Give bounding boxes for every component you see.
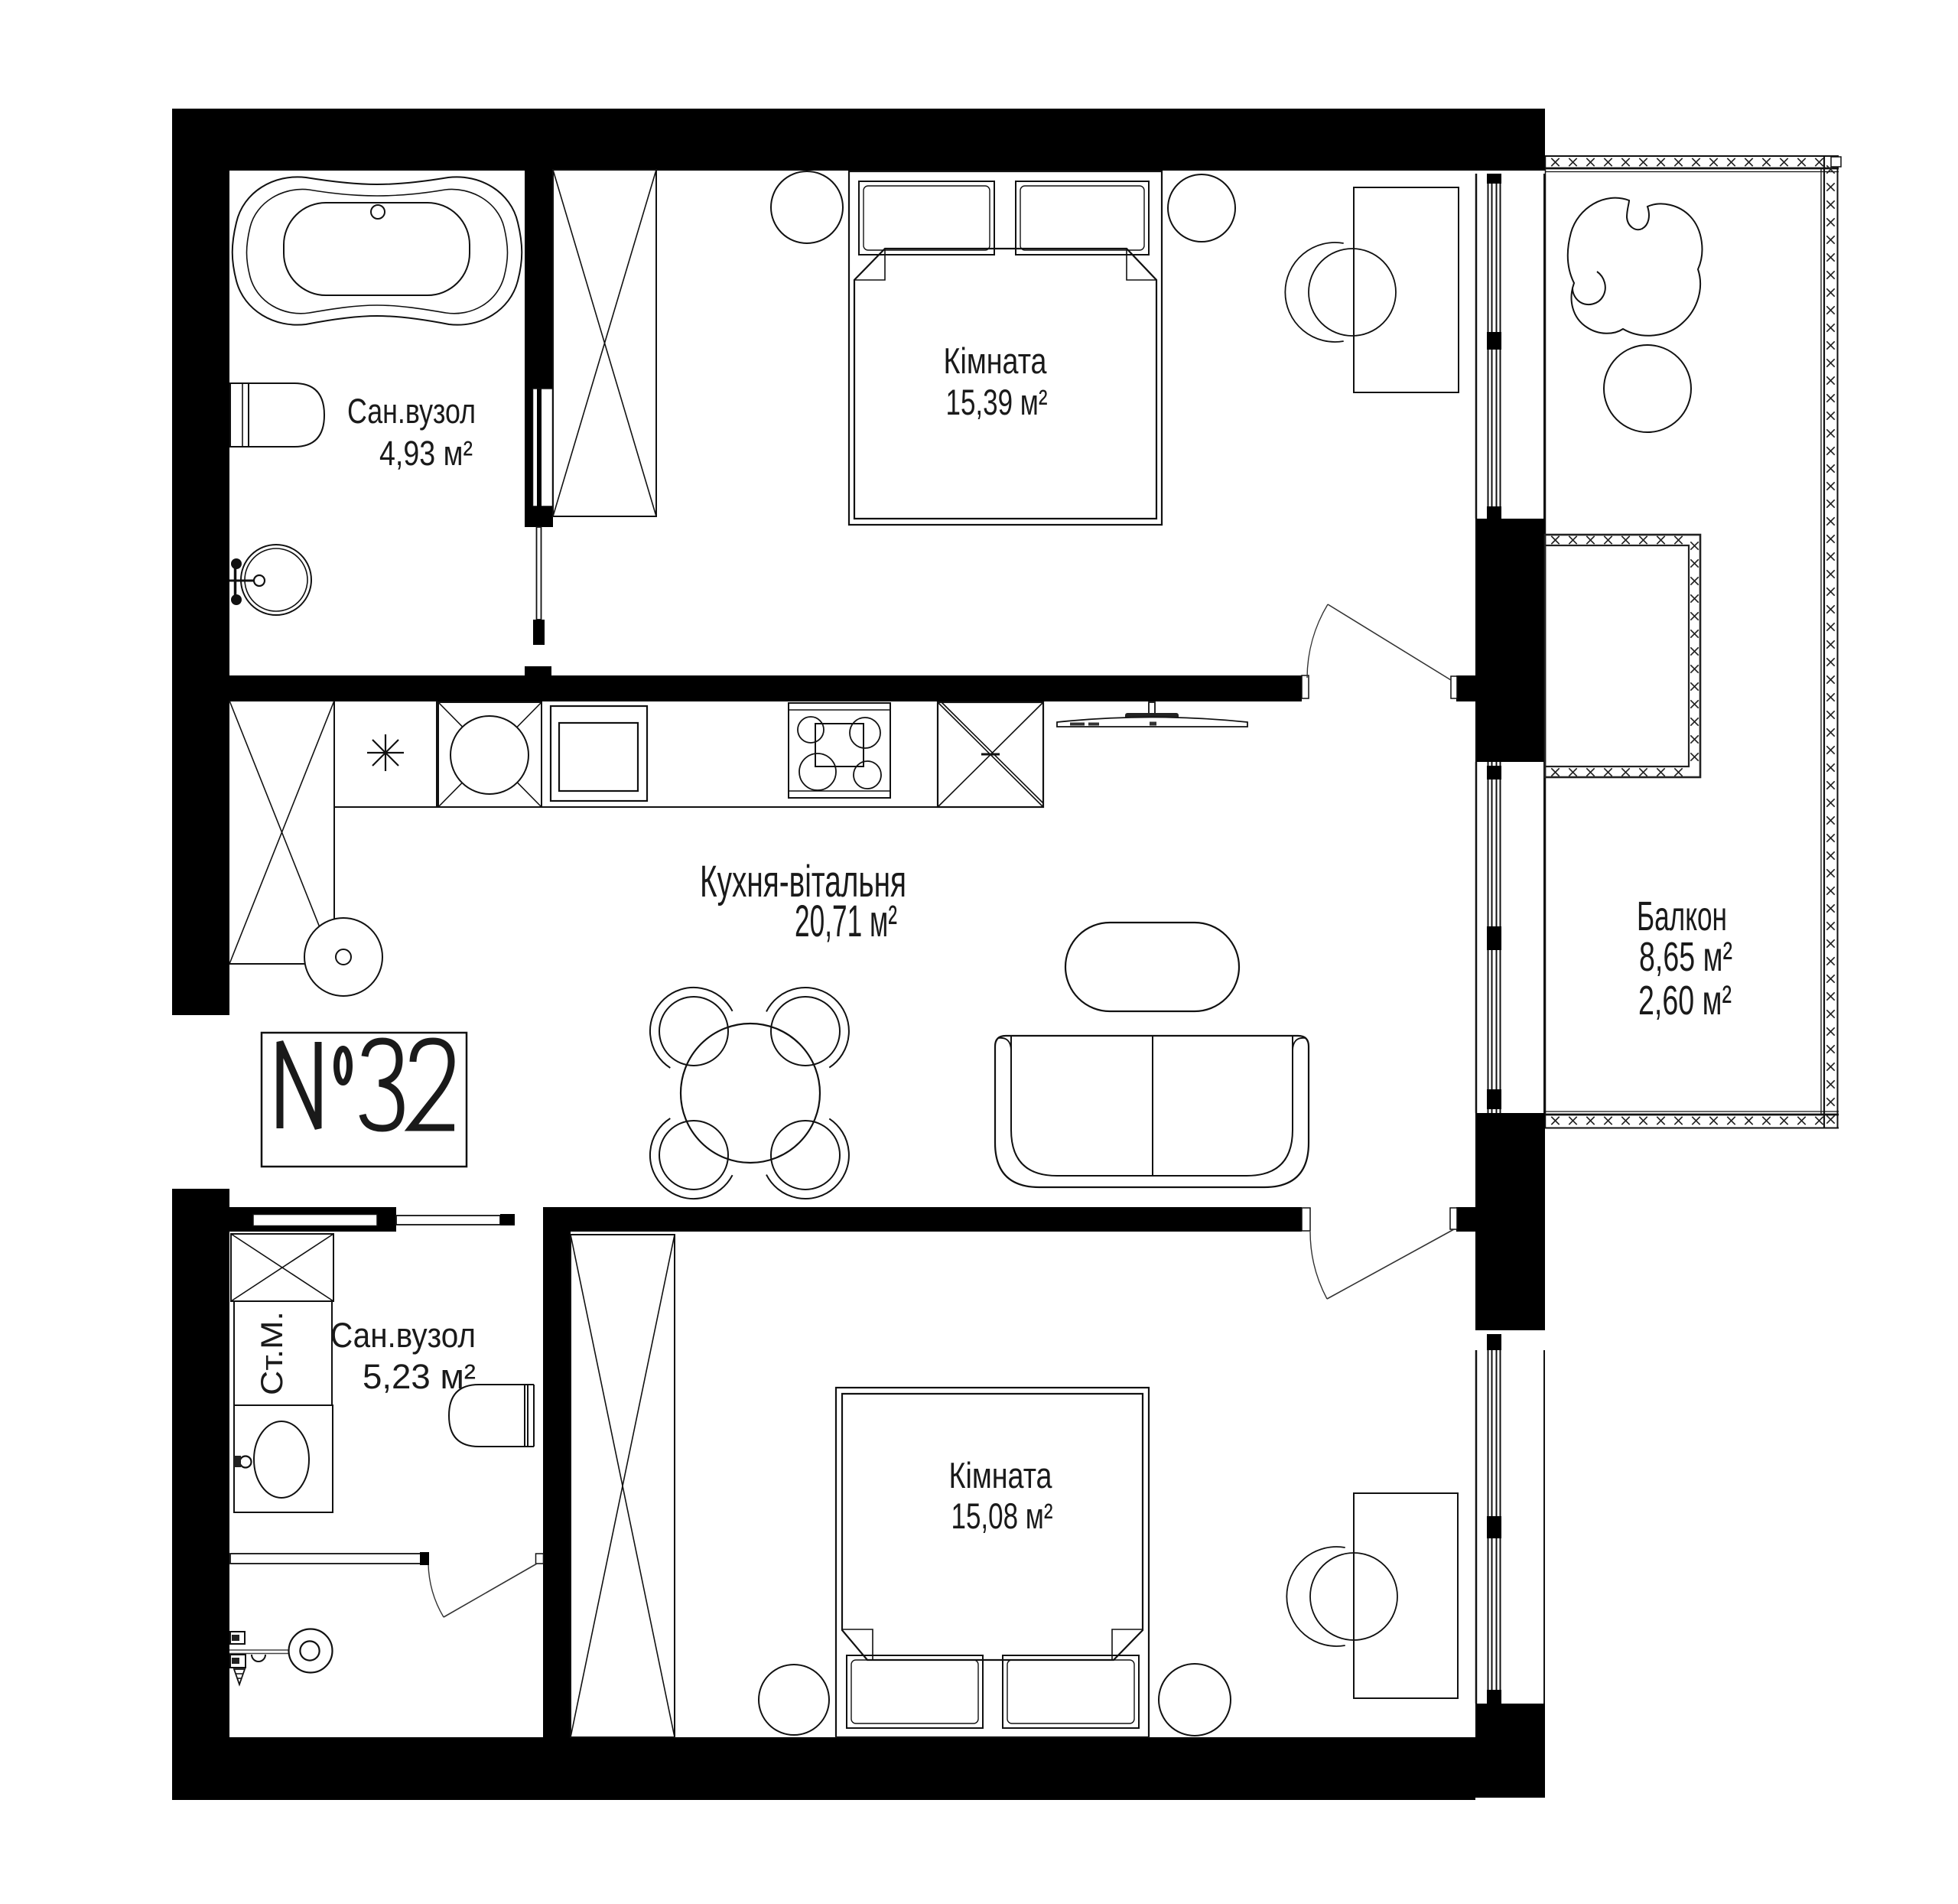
svg-text:20,71 м²: 20,71 м² (795, 897, 897, 946)
svg-text:15,39 м²: 15,39 м² (946, 382, 1048, 422)
svg-text:Кімната: Кімната (949, 1455, 1053, 1496)
svg-text:4,93 м²: 4,93 м² (379, 434, 473, 473)
svg-text:5,23 м²: 5,23 м² (363, 1357, 476, 1396)
svg-text:Кімната: Кімната (944, 340, 1048, 381)
svg-text:Балкон: Балкон (1637, 893, 1727, 939)
svg-text:2,60 м²: 2,60 м² (1638, 978, 1732, 1024)
svg-text:8,65 м²: 8,65 м² (1639, 934, 1732, 980)
svg-text:15,08 м²: 15,08 м² (951, 1496, 1053, 1536)
svg-text:Ст.М.: Ст.М. (255, 1311, 289, 1395)
svg-text:Сан.вузол: Сан.вузол (330, 1316, 476, 1355)
svg-text:Сан.вузол: Сан.вузол (347, 392, 476, 431)
